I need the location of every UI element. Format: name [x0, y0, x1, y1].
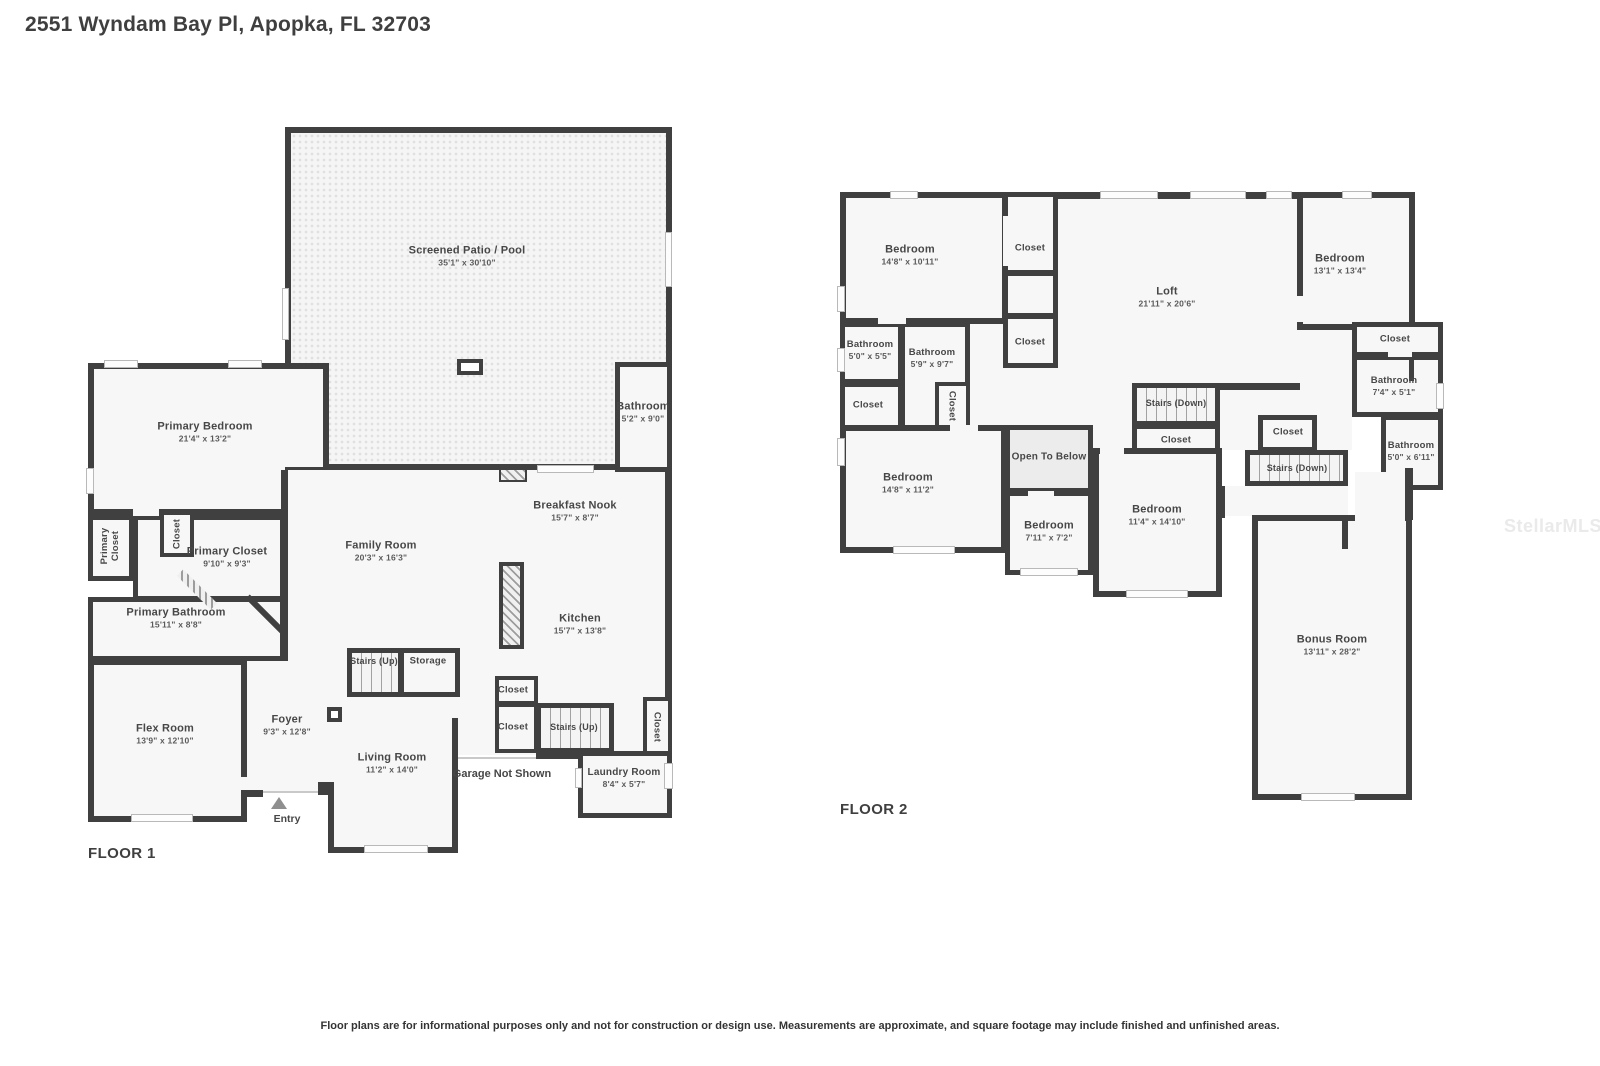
floor1-label: FLOOR 1	[88, 845, 156, 862]
room-living	[328, 718, 458, 853]
wall	[1342, 521, 1348, 549]
door-gap	[1028, 491, 1054, 497]
window	[837, 348, 845, 372]
floor2-label: FLOOR 2	[840, 801, 908, 818]
window	[1190, 191, 1246, 199]
wall	[1218, 486, 1225, 518]
room-closet-column	[1003, 192, 1058, 368]
window	[364, 845, 428, 853]
window	[575, 768, 582, 788]
room-primary-bedroom	[88, 363, 285, 515]
room-closet-upper	[495, 676, 538, 705]
hallway	[970, 324, 1003, 428]
window	[104, 360, 138, 368]
room-primary-closet-hall	[88, 515, 134, 581]
room-bonus	[1252, 515, 1412, 800]
room-bathroom-1	[615, 362, 672, 472]
window	[1100, 191, 1158, 199]
window	[665, 232, 672, 287]
door-gap	[1100, 448, 1124, 455]
room-primary-closet	[133, 515, 285, 601]
door-gap	[878, 318, 906, 324]
hallway	[1225, 486, 1348, 516]
stairs-down-side	[1245, 450, 1348, 486]
window	[282, 288, 289, 340]
room-bathroom-w1	[840, 322, 903, 384]
stellarmls-watermark: StellarMLS	[1504, 516, 1600, 537]
page-title: 2551 Wyndam Bay Pl, Apopka, FL 32703	[25, 13, 431, 37]
room-screened-patio	[285, 127, 672, 470]
wall-post	[318, 782, 334, 795]
window	[664, 763, 673, 789]
door-gap	[133, 509, 159, 516]
stairs-up-main	[347, 648, 403, 697]
window	[1342, 191, 1372, 199]
kitchen-island	[499, 562, 524, 649]
door-opening	[458, 757, 536, 759]
room-closet-side	[643, 697, 672, 757]
window	[1126, 590, 1188, 598]
room-closet-hall	[160, 511, 194, 557]
window	[1266, 191, 1292, 199]
room-bathroom-e1	[1352, 355, 1443, 417]
door-gap	[1003, 216, 1008, 266]
door-gap	[950, 425, 978, 432]
window	[1301, 793, 1355, 801]
room-flex	[88, 659, 247, 822]
door-gap	[1297, 296, 1304, 322]
room-bedroom-sw	[840, 425, 1007, 553]
wall	[1405, 468, 1413, 520]
room-foyer	[247, 661, 328, 793]
window	[86, 468, 94, 494]
wall	[1218, 383, 1300, 390]
stairs-down-main	[1132, 383, 1220, 426]
window	[893, 546, 955, 554]
room-storage	[399, 648, 460, 697]
hallway	[1355, 472, 1405, 522]
entry-arrow	[271, 797, 287, 809]
window	[1020, 568, 1078, 576]
room-primary-bedroom-ext	[285, 363, 329, 473]
window	[837, 286, 845, 312]
hallway	[1000, 368, 1095, 425]
room-closet-w2	[935, 382, 970, 430]
room-closet-w	[840, 382, 903, 430]
wall	[241, 790, 263, 797]
room-bedroom-s	[1005, 491, 1093, 575]
room-laundry	[578, 751, 672, 818]
room-closet-lower	[495, 703, 538, 753]
entry-label: Entry	[274, 813, 301, 825]
room-bedroom-se	[1093, 448, 1222, 597]
floorplan-canvas: 2551 Wyndam Bay Pl, Apopka, FL 32703	[0, 0, 1600, 1066]
entry-opening	[263, 791, 318, 793]
window	[228, 360, 262, 368]
wall	[1056, 192, 1297, 199]
disclaimer: Floor plans are for informational purpos…	[0, 1020, 1600, 1032]
garage-note: Garage Not Shown	[453, 768, 551, 780]
door-gap	[1388, 352, 1412, 357]
window	[131, 814, 193, 822]
open-to-below	[1005, 425, 1093, 493]
patio-door	[499, 468, 527, 482]
window	[1436, 383, 1444, 409]
wall	[328, 790, 334, 853]
window	[890, 191, 918, 199]
stairs-up-side	[536, 703, 614, 753]
window	[837, 438, 845, 466]
room-closet-stairs	[1258, 415, 1317, 452]
room-bedroom-ne	[1297, 192, 1415, 330]
room-bedroom-nw	[840, 192, 1008, 324]
wall	[1003, 313, 1058, 319]
column-post	[327, 707, 342, 722]
sliding-door	[537, 465, 594, 473]
wall	[1003, 270, 1058, 276]
wall	[1409, 357, 1414, 381]
pool-equipment	[457, 359, 483, 375]
